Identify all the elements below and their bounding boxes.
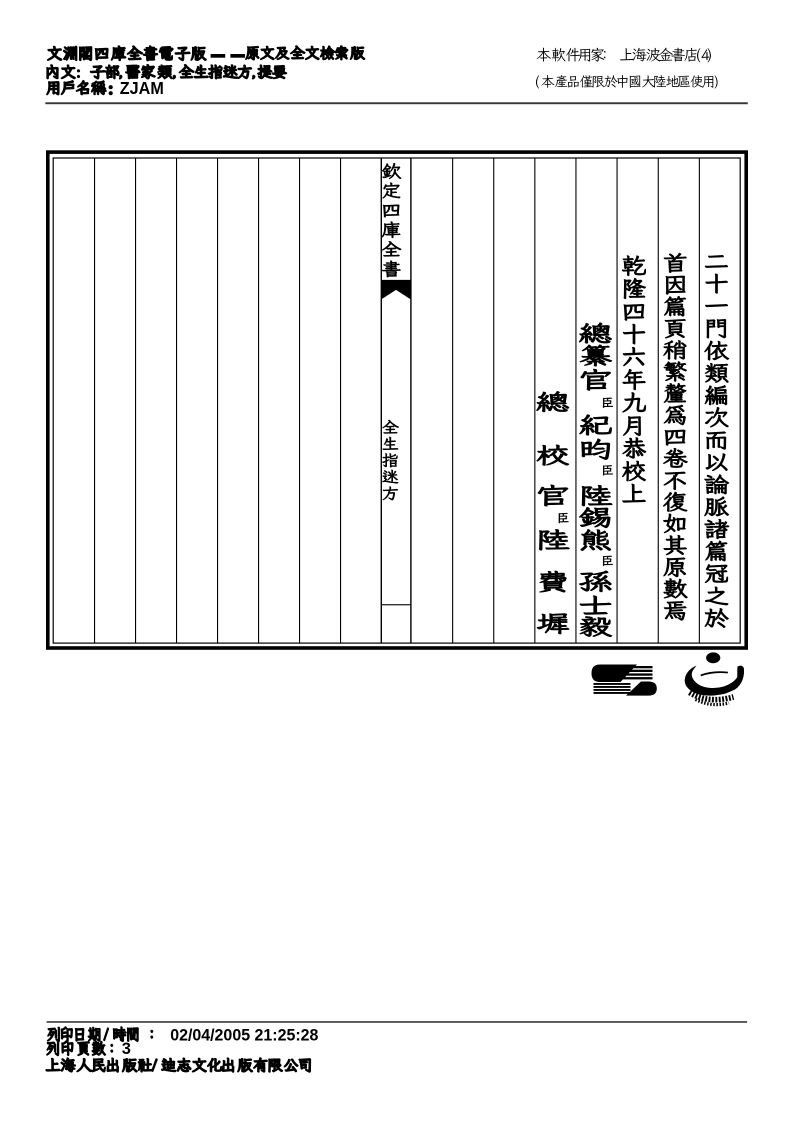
svg-text:02/04/2005 21:25:28: 02/04/2005 21:25:28 — [170, 1025, 318, 1044]
svg-text:3: 3 — [122, 1040, 131, 1058]
svg-text:ZJAM: ZJAM — [120, 78, 164, 98]
